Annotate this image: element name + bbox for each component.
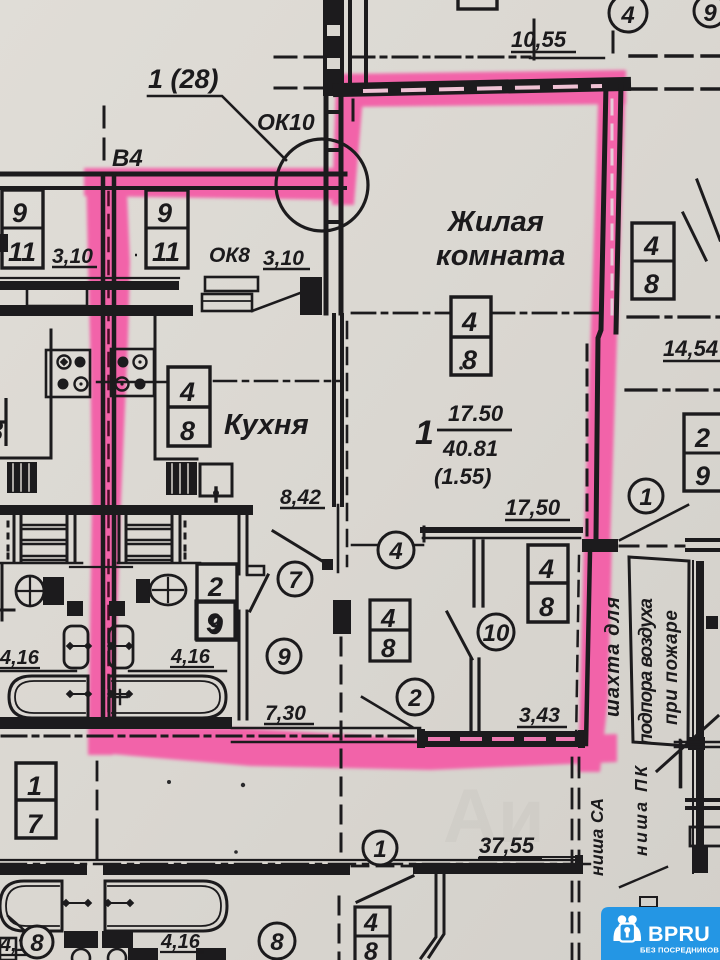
svg-text:ОК10: ОК10 bbox=[257, 109, 315, 135]
svg-text:1: 1 bbox=[415, 414, 434, 452]
svg-text:11: 11 bbox=[152, 237, 180, 267]
svg-text:4,16: 4,16 bbox=[160, 931, 201, 953]
svg-text:8: 8 bbox=[644, 269, 659, 299]
svg-text:ОК8: ОК8 bbox=[209, 244, 250, 267]
svg-text:9: 9 bbox=[703, 0, 717, 27]
svg-text:шахта для: шахта для bbox=[602, 597, 624, 717]
svg-text:3,10: 3,10 bbox=[263, 247, 304, 270]
svg-text:8: 8 bbox=[30, 930, 44, 957]
svg-text:1: 1 bbox=[27, 771, 42, 801]
svg-text:Аи: Аи bbox=[443, 774, 545, 859]
svg-text:4,16: 4,16 bbox=[170, 646, 211, 668]
svg-text:7,30: 7,30 bbox=[265, 702, 306, 725]
svg-text:Жилая: Жилая bbox=[446, 206, 544, 238]
svg-text:4: 4 bbox=[461, 307, 477, 337]
svg-text:1 (28): 1 (28) bbox=[148, 64, 219, 94]
svg-text:(1.55): (1.55) bbox=[434, 464, 491, 489]
svg-text:В4: В4 bbox=[112, 145, 143, 172]
svg-text:7: 7 bbox=[27, 809, 44, 839]
svg-text:BPRU: BPRU bbox=[648, 922, 710, 946]
svg-text:8: 8 bbox=[462, 345, 477, 375]
svg-text:17.50: 17.50 bbox=[448, 401, 504, 426]
svg-text:3,43: 3,43 bbox=[519, 704, 560, 727]
svg-text:при пожаре: при пожаре bbox=[661, 610, 682, 725]
svg-text:8: 8 bbox=[180, 416, 195, 446]
svg-text:1: 1 bbox=[373, 836, 386, 863]
svg-text:4: 4 bbox=[179, 377, 195, 407]
svg-text:Кухня: Кухня bbox=[224, 409, 309, 441]
svg-text:40.81: 40.81 bbox=[442, 436, 498, 461]
svg-text:1: 1 bbox=[639, 484, 652, 511]
svg-text:10: 10 bbox=[483, 620, 510, 647]
svg-text:4: 4 bbox=[388, 538, 402, 565]
svg-text:4: 4 bbox=[643, 231, 659, 261]
svg-text:8: 8 bbox=[539, 592, 554, 622]
svg-text:2: 2 bbox=[407, 685, 422, 712]
svg-text:8,42: 8,42 bbox=[280, 486, 321, 509]
svg-text:9: 9 bbox=[206, 608, 221, 638]
svg-text:9: 9 bbox=[695, 461, 710, 491]
svg-text:8: 8 bbox=[381, 633, 396, 663]
svg-text:11: 11 bbox=[8, 237, 36, 267]
svg-text:4: 4 bbox=[620, 2, 634, 29]
svg-text:4: 4 bbox=[363, 909, 378, 937]
svg-text:БЕЗ ПОСРЕДНИКОВ: БЕЗ ПОСРЕДНИКОВ bbox=[640, 946, 719, 955]
svg-text:2: 2 bbox=[694, 423, 710, 453]
svg-text:8: 8 bbox=[270, 929, 284, 956]
svg-text:ниша СА: ниша СА bbox=[587, 798, 607, 876]
svg-text:2: 2 bbox=[207, 572, 223, 602]
svg-text:7: 7 bbox=[288, 567, 303, 594]
svg-text:14,54: 14,54 bbox=[663, 336, 718, 361]
svg-text:8: 8 bbox=[0, 416, 3, 446]
svg-text:3,10: 3,10 bbox=[52, 245, 93, 268]
svg-text:9: 9 bbox=[157, 198, 172, 228]
svg-text:комната: комната bbox=[436, 240, 565, 272]
svg-text:9: 9 bbox=[277, 644, 291, 671]
svg-text:9: 9 bbox=[12, 198, 27, 228]
svg-text:4: 4 bbox=[538, 554, 554, 584]
svg-text:10,55: 10,55 bbox=[511, 27, 567, 52]
svg-text:17,50: 17,50 bbox=[505, 495, 561, 520]
svg-text:4,16: 4,16 bbox=[0, 647, 40, 669]
svg-text:подпора воздуха: подпора воздуха bbox=[636, 598, 657, 745]
svg-text:8: 8 bbox=[364, 938, 378, 960]
